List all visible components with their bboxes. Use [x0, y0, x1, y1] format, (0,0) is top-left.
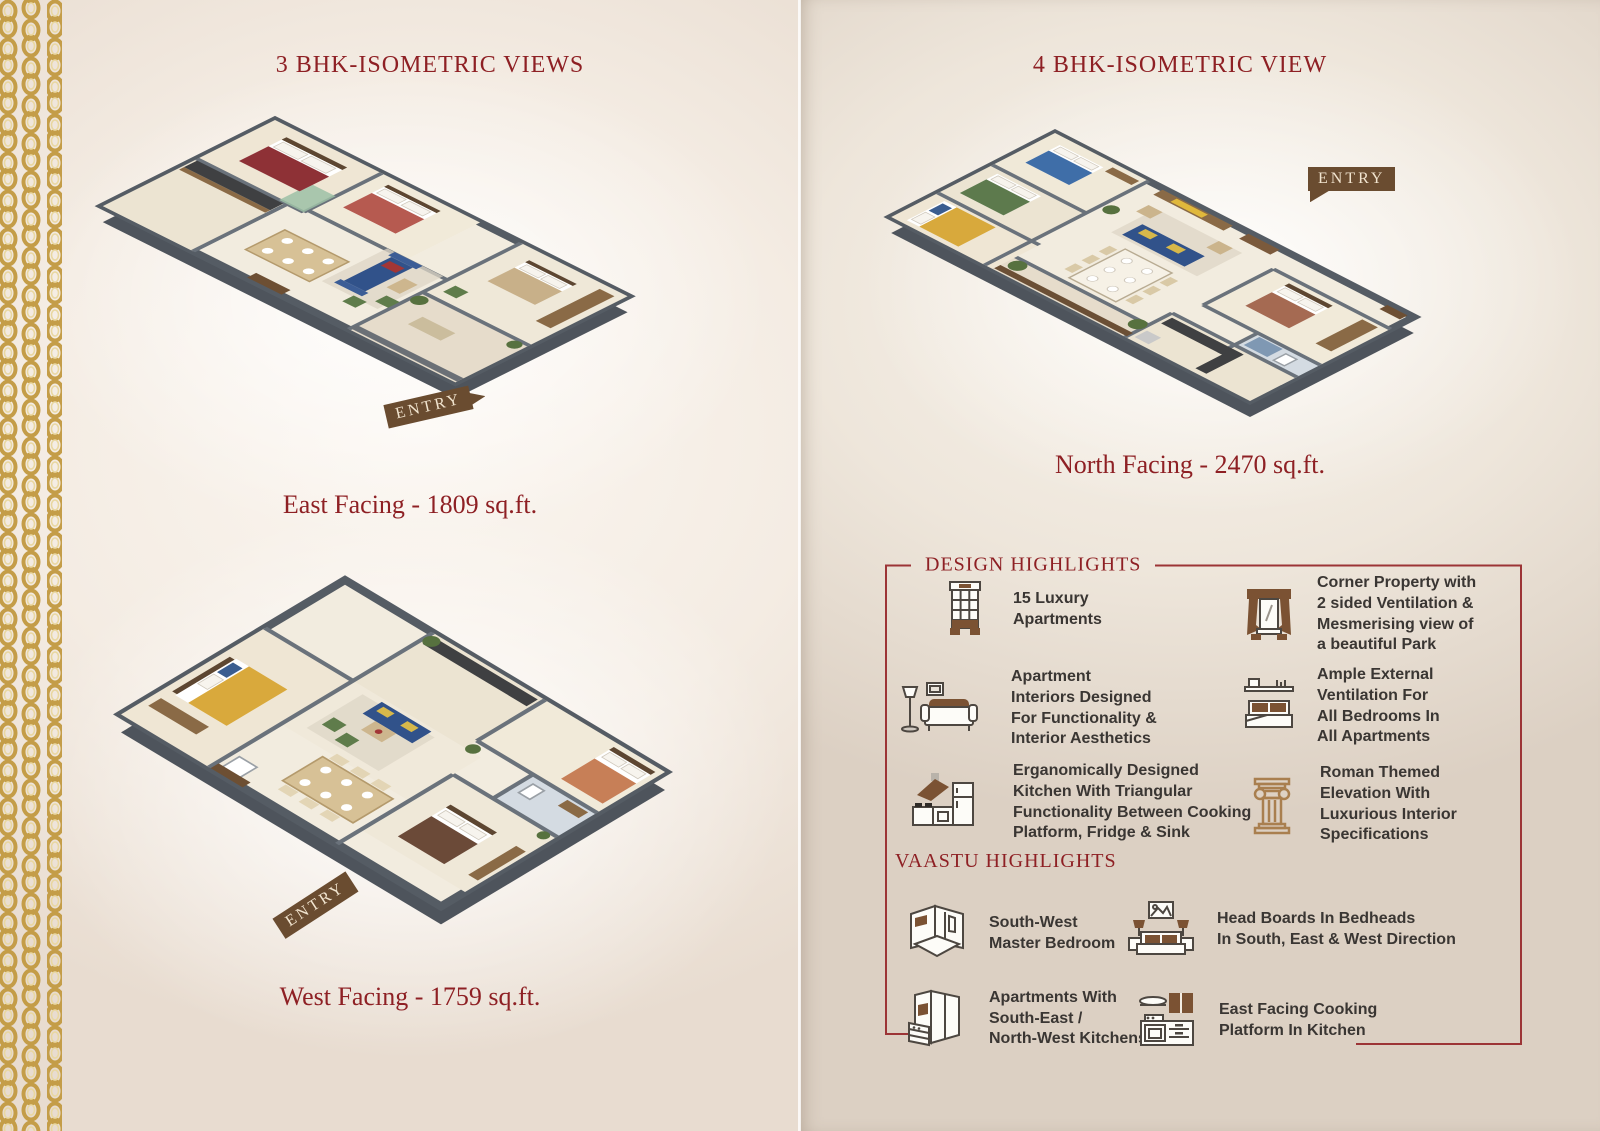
floor-plan-4bhk-north	[880, 115, 1500, 455]
page-divider	[798, 0, 801, 1131]
highlight-item: Apartment Interiors Designed For Functio…	[895, 667, 1157, 750]
highlight-text: 15 Luxury Apartments	[1013, 589, 1102, 631]
roman-column-icon	[1240, 773, 1304, 837]
bedheads-icon	[1121, 898, 1201, 962]
highlight-text: Roman Themed Elevation With Luxurious In…	[1320, 763, 1457, 846]
corner-kitchen-icon	[901, 983, 973, 1055]
gold-knot-pattern-icon	[0, 0, 62, 1131]
highlight-text: South-West Master Bedroom	[989, 913, 1115, 955]
highlight-text: East Facing Cooking Platform In Kitchen	[1219, 1000, 1377, 1042]
highlight-text: Erganomically Designed Kitchen With Tria…	[1013, 761, 1251, 844]
highlight-text: Head Boards In Bedheads In South, East &…	[1217, 909, 1456, 951]
vaastu-highlights-heading: VAASTU HIGHLIGHTS	[895, 850, 1117, 873]
design-highlights-heading: DESIGN HIGHLIGHTS	[911, 554, 1155, 577]
bed-shelf-icon	[1237, 675, 1301, 739]
floor-plan-3bhk-west	[110, 555, 750, 975]
caption-east-facing: East Facing - 1809 sq.ft.	[90, 490, 730, 520]
highlight-item: South-West Master Bedroom	[901, 898, 1115, 970]
highlight-item: Ample External Ventilation For All Bedro…	[1237, 665, 1440, 748]
highlight-item: Roman Themed Elevation With Luxurious In…	[1240, 763, 1457, 846]
entry-label-north-text: ENTRY	[1318, 170, 1385, 187]
highlight-text: Corner Property with 2 sided Ventilation…	[1317, 573, 1476, 656]
highlight-item: Apartments With South-East / North-West …	[901, 983, 1147, 1055]
frame-line-bottom	[1356, 1043, 1522, 1045]
title-4bhk: 4 BHK-ISOMETRIC VIEW	[860, 52, 1500, 79]
kitchen-hood-fridge-icon	[905, 771, 997, 835]
apartment-building-icon	[933, 578, 997, 642]
brochure-spread: 3 BHK-ISOMETRIC VIEWS 4 BHK-ISOMETRIC VI…	[0, 0, 1600, 1131]
highlights-panel: DESIGN HIGHLIGHTS	[885, 565, 1522, 1045]
window-curtain-icon	[1237, 583, 1301, 647]
frame-line-top-left	[885, 564, 911, 566]
frame-line-right	[1520, 565, 1522, 1045]
title-3bhk: 3 BHK-ISOMETRIC VIEWS	[60, 52, 800, 79]
highlight-item: Corner Property with 2 sided Ventilation…	[1237, 573, 1476, 656]
highlight-text: Apartments With South-East / North-West …	[989, 988, 1147, 1050]
highlight-item: Erganomically Designed Kitchen With Tria…	[905, 761, 1251, 844]
sofa-lamp-icon	[895, 677, 995, 741]
caption-west-facing: West Facing - 1759 sq.ft.	[90, 982, 730, 1012]
highlight-text: Apartment Interiors Designed For Functio…	[1011, 667, 1157, 750]
ornamental-border	[0, 0, 62, 1131]
caption-north-facing: North Facing - 2470 sq.ft.	[880, 450, 1500, 480]
entry-label-north: ENTRY	[1308, 167, 1395, 191]
master-bedroom-icon	[901, 898, 973, 970]
cooking-platform-icon	[1131, 989, 1203, 1053]
highlight-item: East Facing Cooking Platform In Kitchen	[1131, 989, 1377, 1053]
highlight-item: Head Boards In Bedheads In South, East &…	[1121, 898, 1456, 962]
floor-plan-4bhk-north-drawing	[880, 115, 1500, 455]
frame-line-left	[885, 565, 887, 1035]
highlight-text: Ample External Ventilation For All Bedro…	[1317, 665, 1440, 748]
floor-plan-3bhk-west-drawing	[110, 555, 750, 975]
frame-line-top-right	[1155, 564, 1522, 566]
highlight-item: 15 Luxury Apartments	[933, 578, 1102, 642]
